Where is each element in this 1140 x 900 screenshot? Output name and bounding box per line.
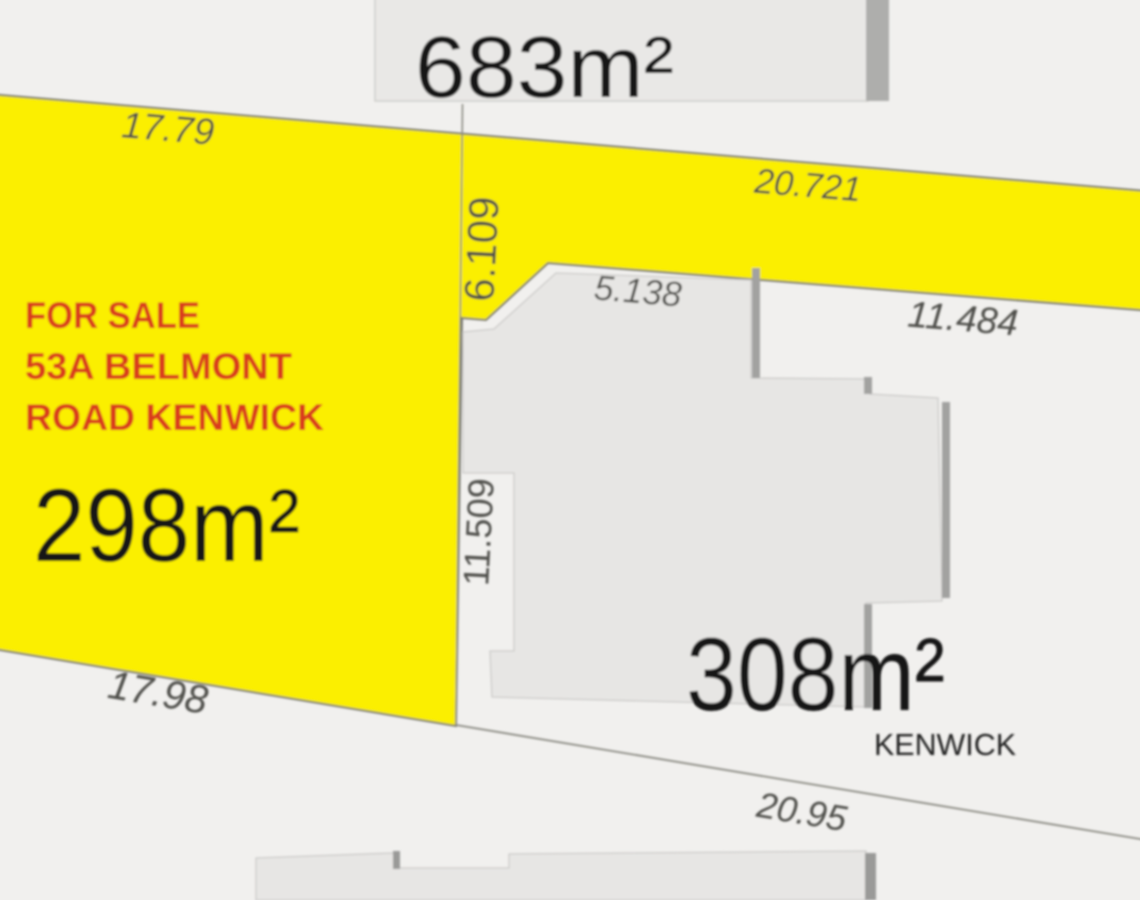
svg-text:683m²: 683m² bbox=[415, 19, 674, 116]
svg-text:5.138: 5.138 bbox=[593, 268, 684, 314]
svg-text:6.109: 6.109 bbox=[455, 195, 507, 302]
svg-text:308m²: 308m² bbox=[686, 617, 945, 733]
svg-text:FOR SALE: FOR SALE bbox=[25, 295, 200, 336]
svg-text:ROAD KENWICK: ROAD KENWICK bbox=[25, 397, 324, 438]
svg-text:KENWICK: KENWICK bbox=[874, 727, 1016, 762]
svg-text:53A BELMONT: 53A BELMONT bbox=[25, 346, 292, 387]
svg-text:17.79: 17.79 bbox=[120, 104, 216, 153]
svg-text:298m²: 298m² bbox=[33, 468, 300, 584]
svg-text:11.509: 11.509 bbox=[455, 477, 502, 586]
